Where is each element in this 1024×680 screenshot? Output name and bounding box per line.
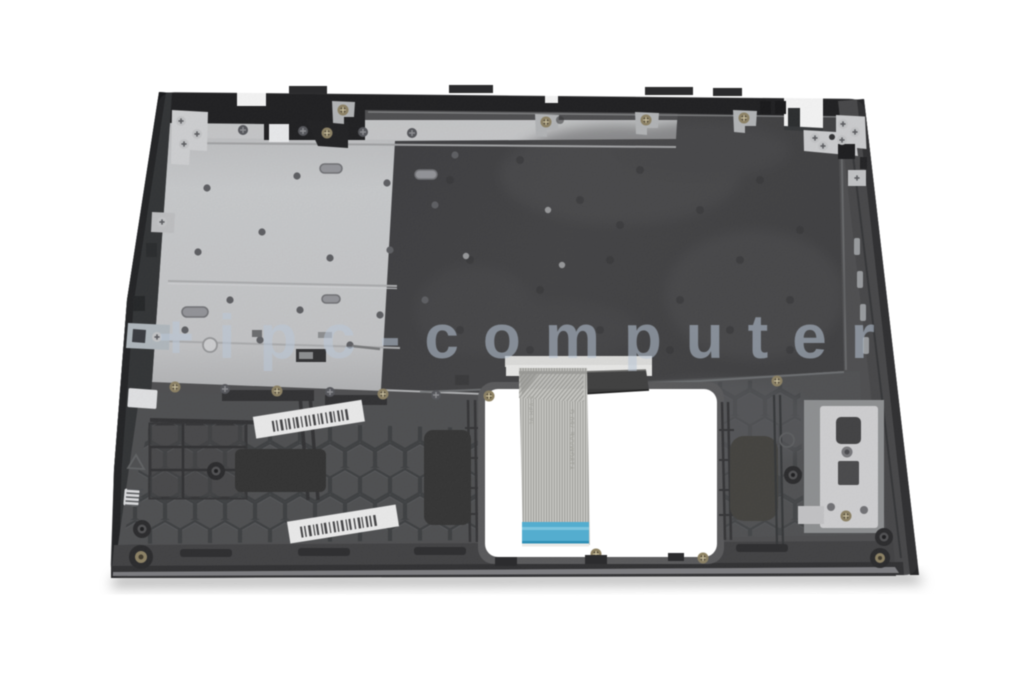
svg-text:+ipc-computer: +ipc-computer: [158, 303, 899, 372]
svg-text:Y18GMAAE 750 G: Y18GMAAE 750 G: [569, 408, 576, 470]
svg-text:JA HFA-3: JA HFA-3: [530, 395, 536, 425]
